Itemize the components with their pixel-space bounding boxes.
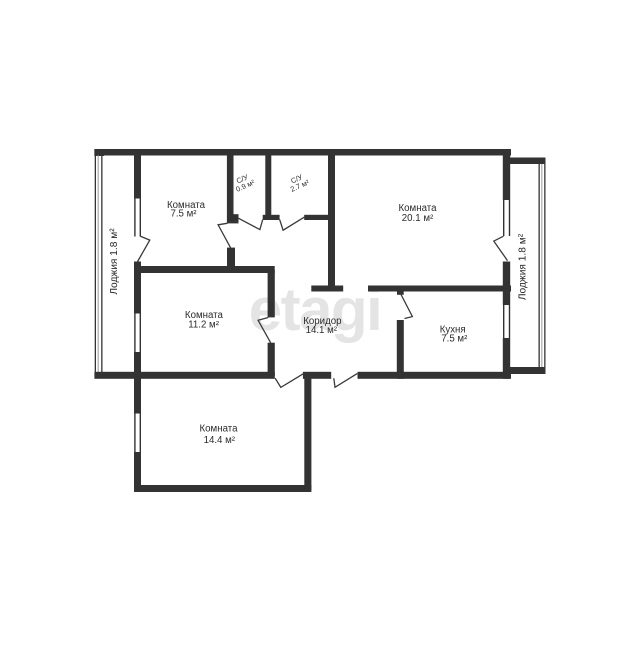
svg-text:7.5 м²: 7.5 м² <box>441 334 468 345</box>
svg-text:20.1 м²: 20.1 м² <box>402 213 434 224</box>
svg-text:Лоджия 1.8 м²: Лоджия 1.8 м² <box>518 233 529 300</box>
svg-text:Комната: Комната <box>200 424 239 435</box>
svg-text:7.5 м²: 7.5 м² <box>170 209 197 220</box>
svg-text:14.4 м²: 14.4 м² <box>204 435 236 446</box>
svg-text:14.1 м²: 14.1 м² <box>306 325 338 336</box>
svg-text:11.2 м²: 11.2 м² <box>188 320 219 331</box>
svg-text:Лоджия 1.8 м²: Лоджия 1.8 м² <box>109 228 120 295</box>
